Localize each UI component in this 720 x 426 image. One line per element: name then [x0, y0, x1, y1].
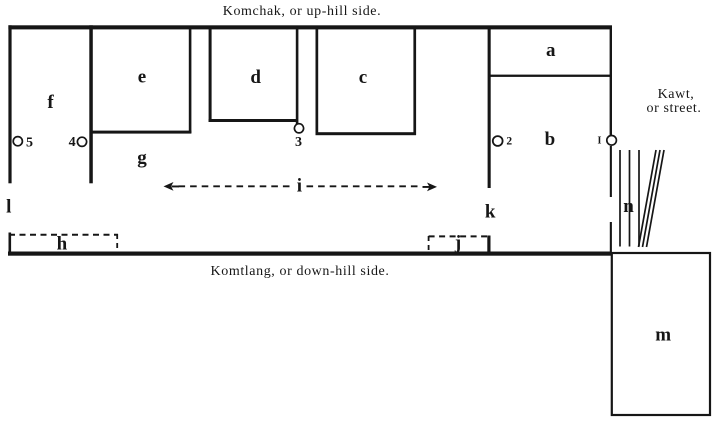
svg-text:h: h — [57, 234, 68, 255]
svg-text:a: a — [546, 40, 556, 61]
svg-text:4: 4 — [69, 135, 76, 150]
svg-text:m: m — [655, 324, 671, 345]
svg-text:or street.: or street. — [647, 101, 702, 116]
svg-text:e: e — [138, 67, 146, 88]
svg-text:b: b — [545, 129, 556, 150]
svg-text:i: i — [297, 176, 302, 197]
svg-text:n: n — [623, 196, 634, 217]
svg-text:j: j — [454, 233, 461, 254]
svg-text:c: c — [359, 67, 367, 88]
svg-text:3: 3 — [295, 135, 302, 150]
svg-text:Komchak, or up-hill side.: Komchak, or up-hill side. — [223, 4, 381, 19]
svg-text:I: I — [598, 136, 602, 147]
svg-text:g: g — [137, 148, 147, 169]
svg-text:5: 5 — [26, 135, 33, 150]
svg-text:2: 2 — [506, 136, 512, 148]
svg-text:Komtlang, or down-hill side.: Komtlang, or down-hill side. — [211, 264, 390, 279]
svg-text:Kawt,: Kawt, — [658, 87, 695, 102]
svg-text:l: l — [6, 196, 11, 217]
svg-text:f: f — [47, 92, 54, 113]
svg-text:d: d — [250, 67, 261, 88]
svg-text:k: k — [485, 201, 496, 222]
